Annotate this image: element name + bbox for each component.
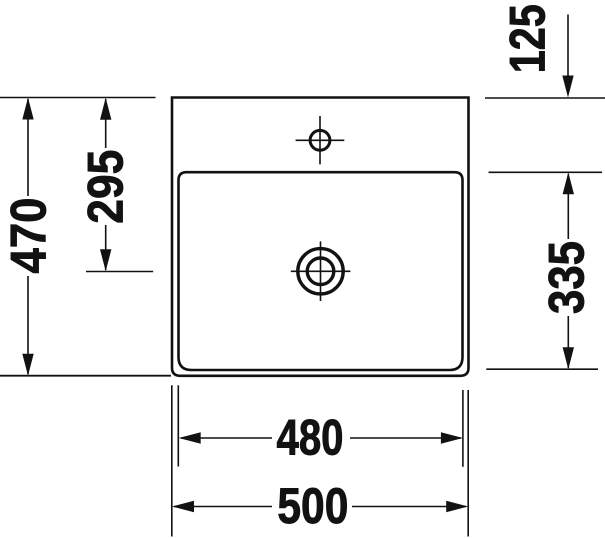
svg-text:480: 480 [277, 410, 344, 466]
svg-text:470: 470 [1, 198, 57, 274]
svg-text:335: 335 [539, 241, 595, 314]
svg-text:125: 125 [499, 4, 555, 73]
svg-text:295: 295 [78, 150, 134, 224]
svg-text:500: 500 [277, 478, 348, 534]
